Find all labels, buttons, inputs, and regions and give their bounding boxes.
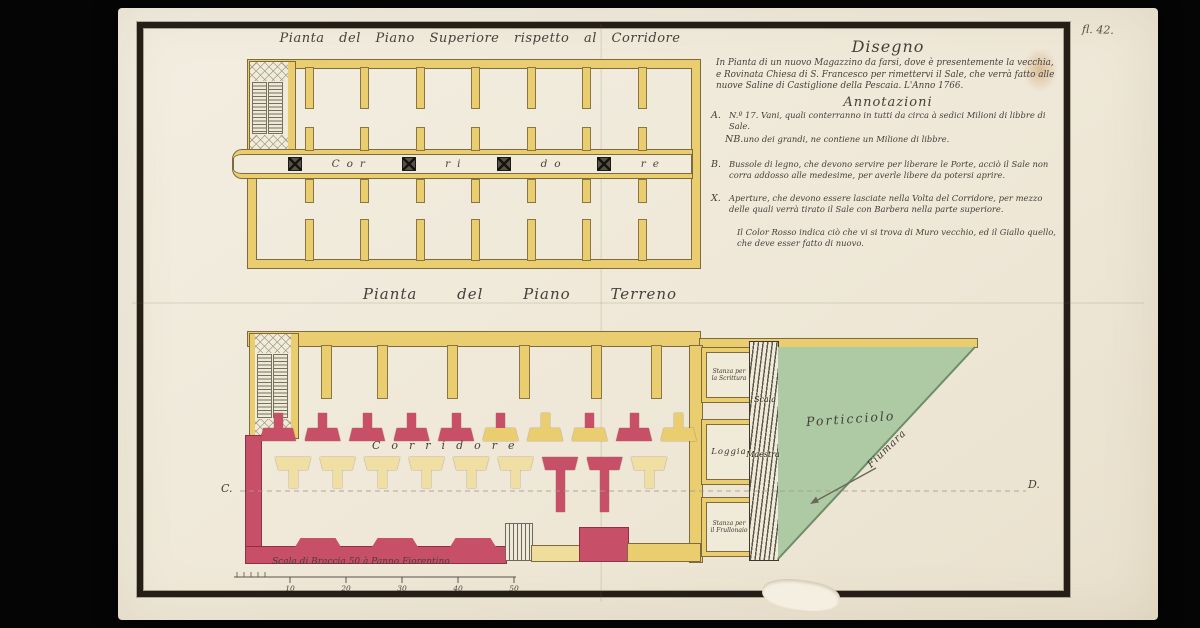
pier-bar: [631, 457, 667, 470]
folio-number: fl. 42.: [1082, 23, 1152, 40]
archival-scan-background: Corridore Stanza per la Scrittura Lo: [0, 0, 1200, 628]
pier-stem: [630, 413, 639, 428]
right-wall: [690, 346, 702, 562]
pier-bar: [498, 457, 534, 470]
annotation-key: [719, 227, 737, 249]
pier-stem: [274, 413, 283, 428]
pier-bar: [320, 457, 356, 470]
pier-stem: [467, 470, 476, 488]
room-label: Loggia: [711, 447, 746, 458]
stair-flights: [255, 353, 291, 419]
pier-mixed: [572, 413, 608, 441]
room-label: Stanza per: [713, 368, 746, 376]
pier-stem: [556, 470, 565, 512]
pier-new: [527, 413, 563, 441]
annotation-key: B.: [711, 159, 729, 181]
room-label: Stanza per: [713, 520, 746, 528]
annotation-item: X.Aperture, che devono essere lasciate n…: [711, 193, 1061, 215]
pier-old: [542, 457, 578, 512]
ground-corridor-label: Corridore: [372, 439, 602, 453]
pier-new: [364, 457, 400, 488]
annotation-text: N.º 17. Vani, quali conterranno in tutti…: [729, 110, 1061, 132]
annotation-text: Il Color Rosso indica ciò che vi si trov…: [737, 227, 1061, 249]
stair-flight: [274, 355, 287, 417]
pier-bar: [616, 428, 652, 441]
annotation-item: Il Color Rosso indica ciò che vi si trov…: [719, 227, 1061, 249]
partition-stub: [520, 346, 529, 398]
pier-new: [409, 457, 445, 488]
pier-stem: [541, 413, 550, 428]
pier-stem: [378, 470, 387, 488]
pier-stem: [585, 413, 594, 428]
scala-label: Scala: [748, 395, 782, 405]
annotation-text: uno dei grandi, ne contiene un Milione d…: [743, 134, 1061, 146]
bottom-wall-segment: [628, 544, 700, 561]
pier-old: [587, 457, 623, 512]
pier-bar: [661, 428, 697, 441]
quay-edge-wall: [700, 339, 977, 347]
old-wall-pilaster: [450, 538, 496, 547]
old-wall-pilaster: [372, 538, 418, 547]
pier-old: [305, 413, 341, 441]
pier-new: [631, 457, 667, 488]
pier-new: [661, 413, 697, 441]
room-label: la Scrittura: [712, 375, 747, 383]
pier-old: [349, 413, 385, 441]
pier-bar: [260, 428, 296, 441]
pier-new: [275, 457, 311, 488]
room-label: il Frullonaio: [710, 527, 747, 535]
stair-flight: [258, 355, 271, 417]
annotation-item: B.Bussole di legno, che devono servire p…: [711, 159, 1061, 181]
disegno-heading: Disegno: [713, 37, 1063, 58]
pier-bar: [364, 457, 400, 470]
bottom-wall-segment: [532, 546, 580, 561]
pier-stem: [318, 413, 327, 428]
pier-stem: [452, 413, 461, 428]
upper-plan-title: Pianta del Piano Superiore rispetto al C…: [270, 31, 690, 48]
pier-stem: [422, 470, 431, 488]
pier-stem: [511, 470, 520, 488]
pier-new: [498, 457, 534, 488]
pier-stem: [289, 470, 298, 488]
old-left-wall: [246, 436, 261, 563]
pier-stem: [645, 470, 654, 488]
pier-old: [438, 413, 474, 441]
partition-stub: [322, 346, 331, 398]
disegno-body: In Pianta di un nuovo Magazzino da farsi…: [716, 58, 1060, 93]
partition-stub: [378, 346, 387, 398]
pier-stem: [407, 413, 416, 428]
pier-new: [453, 457, 489, 488]
pier-old: [260, 413, 296, 441]
pier-stem: [333, 470, 342, 488]
section-letter-d: D.: [1028, 478, 1040, 492]
pier-bar: [587, 457, 623, 470]
lower-plan-title: Pianta del Piano Terreno: [320, 285, 720, 305]
annotation-key: A.: [711, 110, 729, 132]
pier-stem: [674, 413, 683, 428]
annotation-key: X.: [711, 193, 729, 215]
old-wall-pilaster: [295, 538, 341, 547]
annotation-text: Aperture, che devono essere lasciate nel…: [729, 193, 1061, 215]
room-scrittura: Stanza per la Scrittura: [702, 348, 756, 402]
stair-landing-hatch: [255, 334, 291, 353]
annotation-text: Bussole di legno, che devono servire per…: [729, 159, 1061, 181]
top-wall: [248, 332, 700, 346]
pier-old: [394, 413, 430, 441]
pier-bar: [409, 457, 445, 470]
pier-stem: [600, 470, 609, 512]
section-letter-c: C.: [221, 482, 233, 496]
pier-bar: [542, 457, 578, 470]
maestra-label: Maestra: [746, 450, 780, 460]
partition-stub: [652, 346, 661, 398]
scale-bar-label: Scala di Braccia 50 à Panno Fiorentino: [272, 557, 502, 569]
pier-bar: [275, 457, 311, 470]
annotazioni-list: A.N.º 17. Vani, quali conterranno in tut…: [711, 110, 1061, 261]
partition-stub: [448, 346, 457, 398]
partition-stub: [592, 346, 601, 398]
pier-old: [616, 413, 652, 441]
small-steps-hatch: [506, 524, 532, 560]
annotation-item: NB.uno dei grandi, ne contiene un Milion…: [725, 134, 1061, 146]
annotation-key: NB.: [725, 134, 743, 146]
pier-stem: [496, 413, 505, 428]
annotation-item: A.N.º 17. Vani, quali conterranno in tut…: [711, 110, 1061, 132]
pier-bar: [453, 457, 489, 470]
pier-mixed: [483, 413, 519, 441]
pier-new: [320, 457, 356, 488]
old-wall-block: [580, 528, 628, 561]
room-frullone: Stanza per il Frullonaio: [702, 498, 756, 556]
pier-bar: [305, 428, 341, 441]
pier-stem: [363, 413, 372, 428]
